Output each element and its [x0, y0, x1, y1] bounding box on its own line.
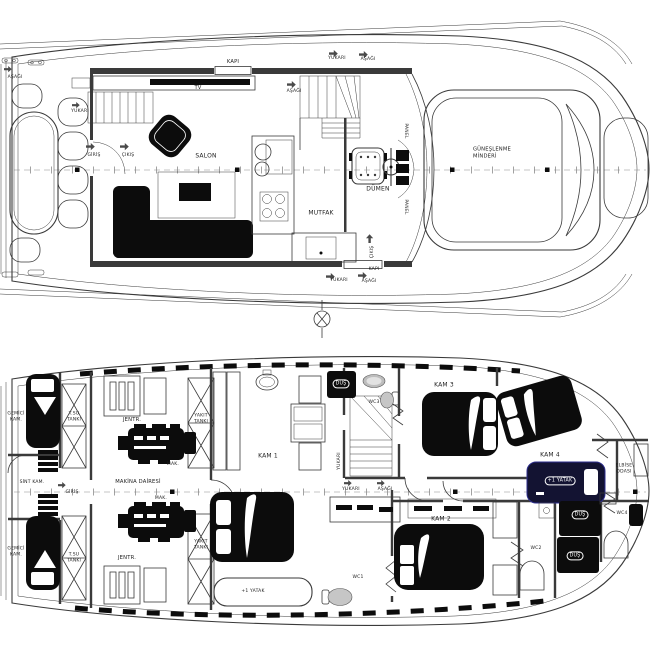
- bed-kam2: [394, 524, 484, 590]
- crew-bed-top: [26, 374, 60, 448]
- yacht-deck-plan: AŞAĞI YUKARI KAPI TV AŞAĞI YUKARI AŞAĞI …: [0, 0, 650, 650]
- door-kapi-top: [215, 67, 251, 75]
- yukari-icon: [329, 50, 338, 57]
- yukari-cl-icon: [344, 480, 352, 486]
- crew-bed-bottom: [26, 516, 60, 590]
- toilet-wc2: [520, 503, 554, 590]
- tv-cabinet: [72, 76, 255, 90]
- transom-lines: [1, 60, 6, 278]
- side-stairs: [88, 92, 153, 123]
- wardrobe-elbise: [634, 444, 648, 476]
- cleats: [2, 58, 44, 277]
- helm-console: [396, 150, 409, 185]
- cikis-arrow-icon: [120, 143, 129, 150]
- centerline-marker: [314, 300, 330, 338]
- asagi-bottom-icon: [358, 272, 367, 279]
- asagi-transom-icon: [4, 66, 12, 72]
- salon-rug: [158, 172, 235, 218]
- upper-deck: [0, 21, 649, 317]
- tv-screen: [150, 79, 250, 85]
- lower-deck: [1, 357, 649, 626]
- dresser-kam1: [291, 404, 325, 442]
- asagi-icon: [359, 51, 368, 58]
- wc2-folding-door: [511, 542, 523, 566]
- engine-top: [118, 424, 196, 464]
- coffee-table: [179, 183, 211, 201]
- asagi-cl-icon: [377, 480, 385, 486]
- hull-dash-band-bottom: [75, 601, 545, 615]
- elbise-folding-door: [597, 434, 608, 458]
- wardrobe-kam2: [493, 502, 517, 595]
- toilet-wc3: [381, 392, 400, 408]
- bed-kam3: [422, 392, 498, 456]
- sofa-bed-kam1: [214, 578, 312, 606]
- yukari-side-icon: [72, 102, 80, 108]
- upper-centerline: [14, 168, 646, 173]
- dining-chairs: [10, 84, 88, 262]
- companionway-stairs: [300, 76, 360, 138]
- crew-steps-top: [38, 450, 58, 472]
- sink-basin: [255, 162, 269, 176]
- swivel-chair: [145, 111, 196, 162]
- wc4-fixtures: [600, 493, 643, 558]
- freshwater-tank-bottom: [62, 516, 86, 600]
- shower-wc3-box: [327, 371, 356, 398]
- giris-arrow-icon: [86, 143, 95, 150]
- galley-counter: [252, 136, 294, 234]
- direction-arrow-icons-lower: [58, 480, 385, 488]
- giris-lower-icon: [58, 482, 66, 488]
- shower-wc2-box: [557, 537, 599, 573]
- asagi-stairs-icon: [287, 81, 296, 88]
- shower-wc4-box: [559, 501, 601, 536]
- freshwater-tank-top: [62, 384, 86, 468]
- wc4-folding-door: [604, 492, 615, 513]
- sink-basin: [255, 144, 271, 160]
- crew-steps-bottom: [38, 494, 58, 516]
- helm-seat: [349, 148, 387, 184]
- dresser-under-stairs: [330, 497, 400, 522]
- engine-bottom: [118, 502, 196, 542]
- cikis-door-icon: [366, 234, 373, 243]
- yukari-bottom-icon: [326, 273, 335, 280]
- generator-top: [104, 376, 166, 416]
- bed-kam1: [210, 492, 294, 562]
- sofa-bed-kam4: [527, 462, 605, 503]
- generator-bottom: [104, 566, 166, 604]
- hardtop-lines: [0, 21, 632, 317]
- aft-dining-table: [10, 84, 88, 262]
- toilet-wc1: [322, 589, 352, 606]
- bed-kam4: [494, 373, 584, 448]
- wc3-folding-door: [393, 404, 403, 425]
- plan-linework: [0, 0, 650, 650]
- sink-wc3: [363, 375, 385, 388]
- oven-cabinet: [292, 233, 356, 262]
- sink-kam1: [256, 370, 278, 390]
